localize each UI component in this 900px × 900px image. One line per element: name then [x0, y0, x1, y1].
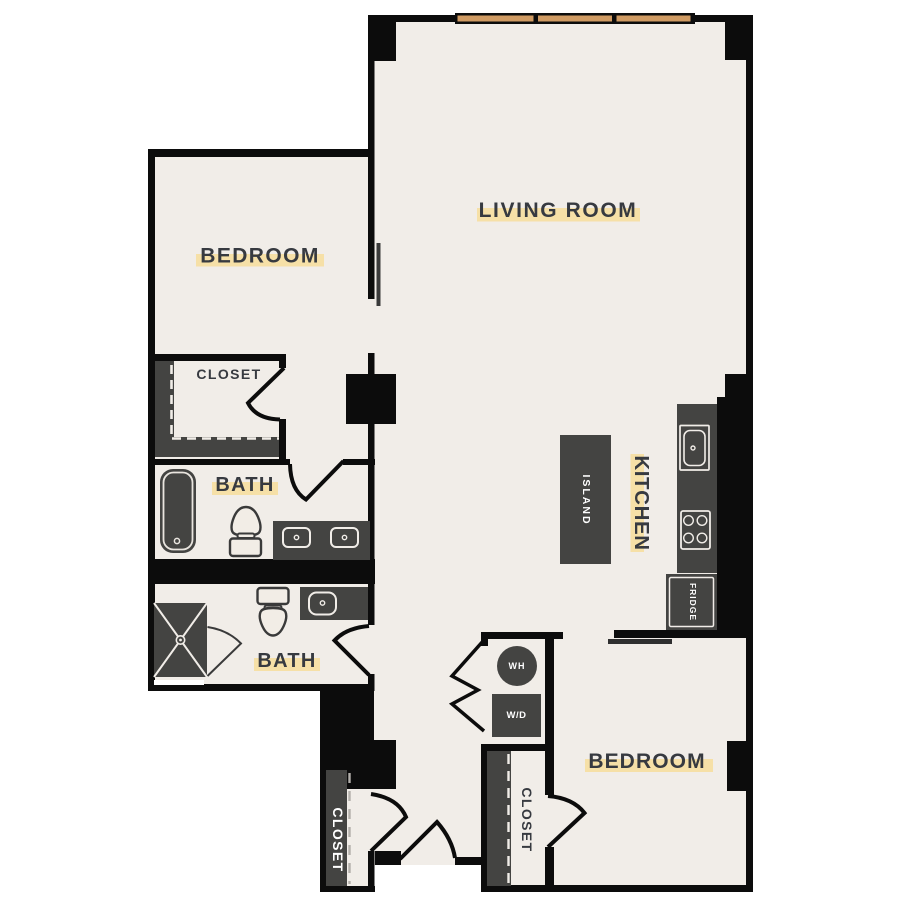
svg-text:BEDROOM: BEDROOM [200, 245, 319, 268]
svg-text:CLOSET: CLOSET [196, 366, 261, 382]
svg-text:W/D: W/D [507, 710, 527, 721]
svg-text:BATH: BATH [215, 474, 274, 496]
svg-text:ISLAND: ISLAND [580, 474, 592, 525]
svg-text:KITCHEN: KITCHEN [630, 455, 653, 550]
svg-text:CLOSET: CLOSET [519, 787, 535, 852]
svg-text:BEDROOM: BEDROOM [588, 750, 705, 773]
svg-text:WH: WH [509, 661, 526, 671]
svg-text:LIVING ROOM: LIVING ROOM [479, 199, 638, 222]
svg-text:FRIDGE: FRIDGE [688, 583, 698, 621]
svg-text:CLOSET: CLOSET [330, 807, 346, 872]
svg-text:BATH: BATH [257, 650, 316, 672]
